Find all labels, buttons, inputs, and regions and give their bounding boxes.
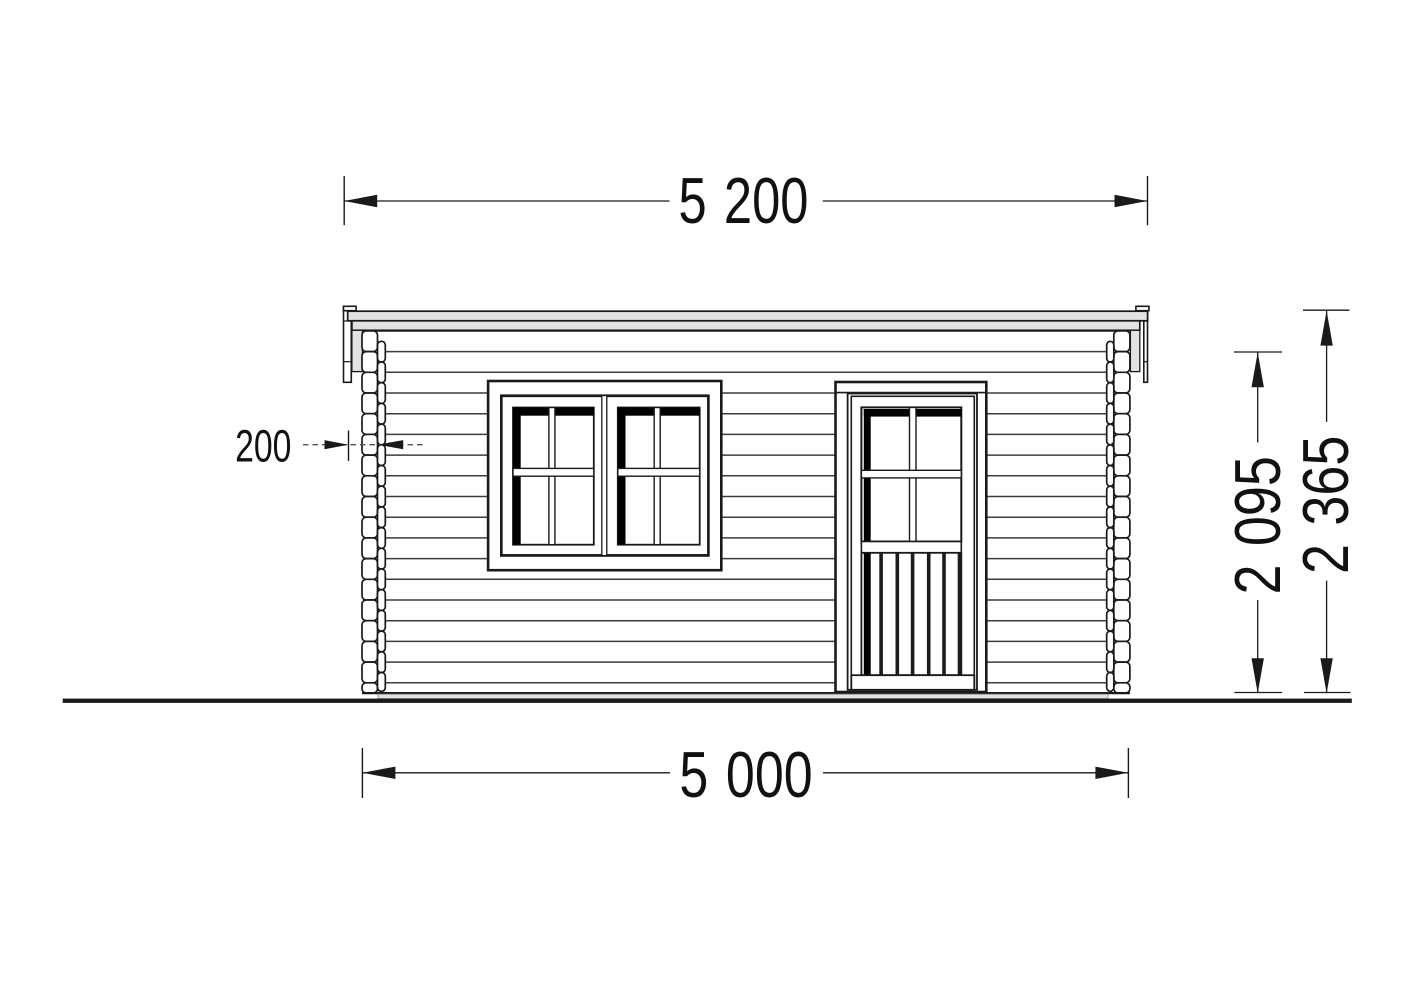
svg-text:5 000: 5 000 [679,740,812,812]
svg-text:2 095: 2 095 [1221,456,1294,594]
svg-text:200: 200 [235,422,291,472]
svg-text:5 200: 5 200 [679,165,809,237]
svg-text:2 365: 2 365 [1289,436,1362,574]
